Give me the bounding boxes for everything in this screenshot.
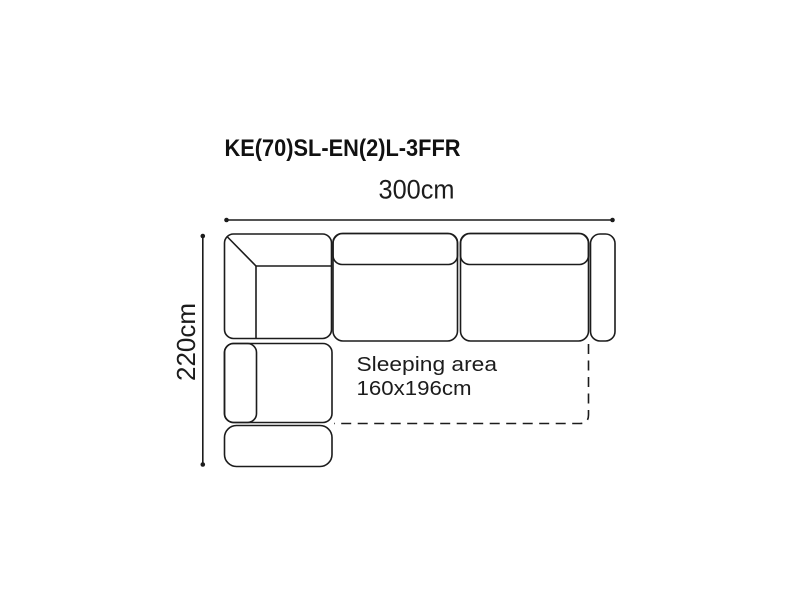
svg-text:220cm: 220cm — [171, 303, 201, 381]
svg-text:KE(70)SL-EN(2)L-3FFR: KE(70)SL-EN(2)L-3FFR — [225, 135, 461, 162]
svg-text:Sleeping area: Sleeping area — [357, 354, 498, 376]
svg-text:300cm: 300cm — [379, 175, 455, 205]
svg-text:160x196cm: 160x196cm — [357, 378, 472, 400]
